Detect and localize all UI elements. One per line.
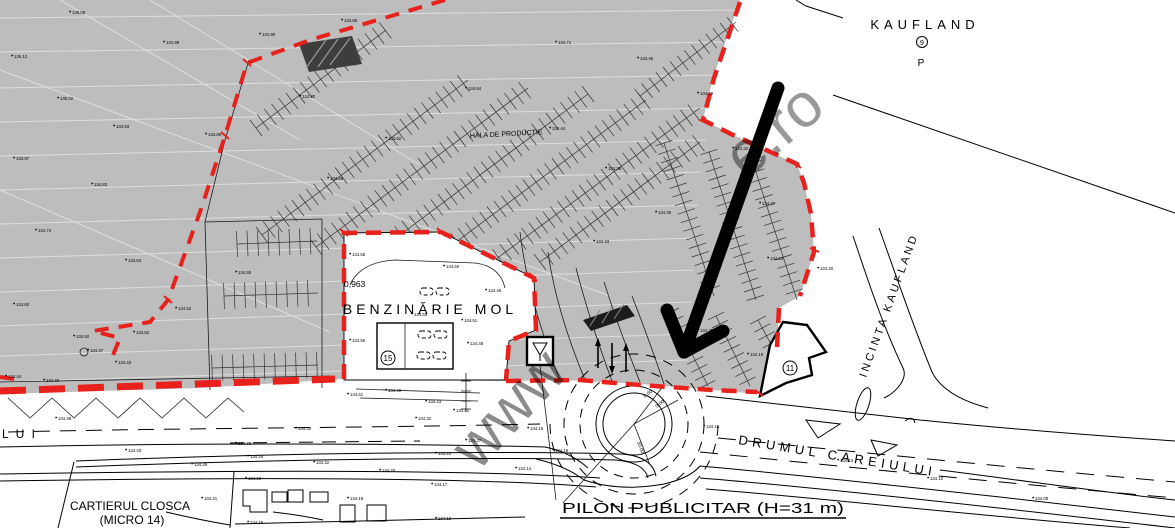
site-plan-svg: 15 11: [0, 0, 1175, 528]
spot-elevation: 134.43: [428, 399, 442, 404]
spot-elevation: 134.38: [608, 166, 622, 171]
spot-elevation: 134.43: [118, 360, 132, 365]
spot-elevation: 134.52: [178, 306, 192, 311]
spot-elevation: 134.97: [16, 156, 30, 161]
spot-elevation: 134.64: [468, 86, 482, 91]
spot-elevation: 134.17: [434, 482, 448, 487]
gas-building-number: 15: [384, 354, 393, 363]
spot-elevation: 134.62: [388, 136, 402, 141]
spot-elevation: 134.51: [464, 318, 478, 323]
spot-elevation: 134.18: [350, 496, 364, 501]
spot-elevation: 134.15: [250, 520, 264, 525]
spot-elevation: 134.22: [316, 460, 330, 465]
spot-elevation: 134.19: [750, 352, 764, 357]
roundabout-dim-3: 30.00: [635, 441, 645, 455]
spot-elevation: 134.08: [1035, 496, 1049, 501]
spot-elevation: 134.20: [820, 266, 834, 271]
spot-elevation: 134.24: [438, 451, 452, 456]
spot-elevation: 134.44: [8, 374, 22, 379]
spot-elevation: 134.68: [330, 176, 344, 181]
spot-elevation: 134.93: [116, 124, 130, 129]
kaufland-number: 9: [920, 40, 924, 47]
spot-elevation: 134.32: [418, 416, 432, 421]
spot-elevation: 135.12: [14, 54, 28, 59]
spot-elevation: 134.74: [38, 228, 52, 233]
spot-elevation: 134.16: [706, 424, 720, 429]
spot-elevation: 134.33: [596, 239, 610, 244]
spot-elevation: 134.14: [518, 466, 532, 471]
spot-elevation: 134.21: [204, 496, 218, 501]
spot-elevation: 134.27: [468, 438, 482, 443]
spot-elevation: 134.16: [555, 448, 569, 453]
spot-elevation: 134.83: [94, 182, 108, 187]
spot-elevation: 134.86: [344, 18, 358, 23]
spot-elevation: 134.86: [208, 132, 222, 137]
spot-elevation: 134.51: [350, 392, 364, 397]
spot-elevation: 134.60: [16, 302, 30, 307]
spot-elevation: 134.27: [762, 201, 776, 206]
spot-elevation: 134.98: [166, 40, 180, 45]
spot-elevation: 134.52: [136, 330, 150, 335]
spot-elevation: 134.40: [46, 378, 60, 383]
spot-elevation: 134.50: [76, 334, 90, 339]
spot-elevation: 134.44: [552, 126, 566, 131]
kaufland-label: KAUFLAND: [870, 17, 979, 32]
spot-elevation: 134.33: [128, 448, 142, 453]
spot-elevation: 134.26: [250, 454, 264, 459]
kaufland-parking-label: P: [918, 58, 925, 69]
spot-elevation: 134.18: [530, 426, 544, 431]
cartierul-label-line2: (MICRO 14): [100, 513, 165, 527]
fence-line: [8, 398, 244, 418]
spot-elevation: 134.55: [238, 270, 252, 275]
spot-elevation: 134.12: [438, 516, 452, 521]
spot-elevation: 135.08: [72, 10, 86, 15]
spot-elevation: 134.46: [488, 288, 502, 293]
area-value-label: 0,963: [344, 279, 366, 289]
spot-elevation: 134.13: [840, 458, 854, 463]
spot-elevation: 134.80: [302, 94, 316, 99]
spot-elevation: 134.20: [382, 468, 396, 473]
spot-elevation: 134.35: [238, 441, 252, 446]
benzinarie-label: BENZINĂRIE MOL: [343, 301, 517, 317]
corner-building-number: 11: [786, 364, 795, 373]
street-partial-label: L U I: [2, 427, 37, 441]
spot-elevation: 134.41: [456, 408, 470, 413]
spot-elevation: 134.22: [700, 328, 714, 333]
cartierul-label-line1: CARTIERUL CLOSCA: [70, 499, 190, 513]
spot-elevation: 134.29: [194, 462, 208, 467]
spot-elevation: 134.10: [930, 476, 944, 481]
spot-elevation: 134.71: [558, 40, 572, 45]
spot-elevation: 134.56: [352, 338, 366, 343]
spot-elevation: 134.32: [735, 146, 749, 151]
spot-elevation: 134.23: [770, 256, 784, 261]
spot-elevation: 134.38: [58, 416, 72, 421]
pilon-label: PILON PUBLICITAR (H=31 m): [562, 500, 844, 517]
spot-elevation: 134.90: [262, 32, 276, 37]
spot-elevation: 134.48: [470, 341, 484, 346]
spot-elevation: 134.40: [700, 91, 714, 96]
incinta-kaufland-label: INCINTA KAUFLAND: [858, 232, 921, 379]
spot-elevation: 134.55: [414, 312, 428, 317]
spot-elevation: 134.49: [388, 388, 402, 393]
kaufland-parcel-lines: [796, 0, 1175, 213]
spot-elevation: 134.30: [658, 210, 672, 215]
site-plan-canvas: 15 11: [0, 0, 1175, 528]
spot-elevation: 134.50: [446, 264, 460, 269]
spot-elevation: 134.47: [90, 348, 104, 353]
spot-elevation: 134.30: [298, 426, 312, 431]
spot-elevation: 134.58: [352, 252, 366, 257]
spot-elevation: 135.02: [60, 96, 74, 101]
spot-elevation: 134.46: [640, 56, 654, 61]
spot-elevation: 134.63: [128, 258, 142, 263]
spot-elevation: 134.23: [248, 476, 262, 481]
